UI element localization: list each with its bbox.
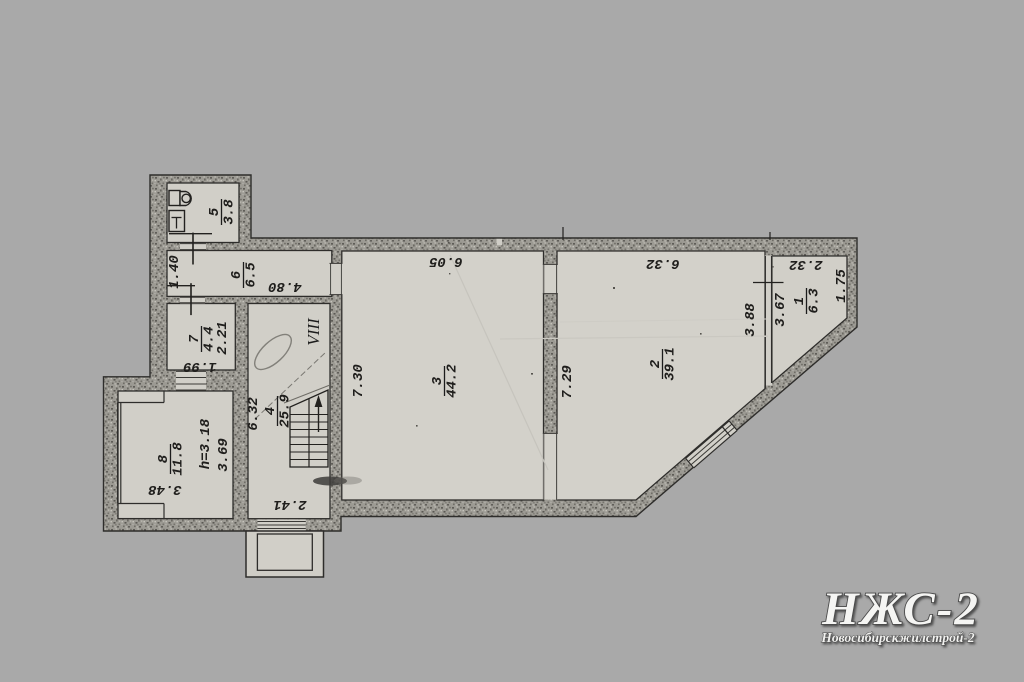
svg-text:3.67: 3.67 bbox=[773, 293, 789, 327]
svg-text:39.1: 39.1 bbox=[663, 347, 679, 381]
svg-text:11.8: 11.8 bbox=[171, 442, 187, 476]
svg-text:3.48: 3.48 bbox=[148, 481, 182, 497]
svg-text:3.88: 3.88 bbox=[743, 303, 759, 337]
svg-text:НЖС-2: НЖС-2 bbox=[821, 583, 980, 635]
svg-text:1.99: 1.99 bbox=[183, 358, 217, 374]
svg-text:4.80: 4.80 bbox=[268, 278, 302, 294]
svg-text:6.32: 6.32 bbox=[246, 397, 262, 431]
svg-text:1.75: 1.75 bbox=[834, 269, 850, 303]
svg-text:6.05: 6.05 bbox=[429, 253, 463, 269]
svg-text:3.69: 3.69 bbox=[216, 438, 232, 472]
svg-text:7.30: 7.30 bbox=[351, 364, 367, 398]
svg-text:h=3.18: h=3.18 bbox=[198, 418, 214, 469]
svg-text:3.8: 3.8 bbox=[222, 199, 238, 225]
svg-text:Новосибирскжилстрой-2: Новосибирскжилстрой-2 bbox=[820, 630, 974, 645]
svg-text:2.21: 2.21 bbox=[215, 321, 231, 355]
svg-text:7.29: 7.29 bbox=[560, 365, 576, 399]
svg-text:1.40: 1.40 bbox=[167, 255, 183, 289]
svg-text:44.2: 44.2 bbox=[445, 364, 461, 398]
svg-text:VIII: VIII bbox=[304, 317, 323, 346]
svg-text:2.41: 2.41 bbox=[273, 496, 307, 512]
svg-text:6.32: 6.32 bbox=[646, 255, 680, 271]
svg-text:2.32: 2.32 bbox=[789, 256, 823, 272]
svg-text:25.9: 25.9 bbox=[278, 394, 294, 428]
svg-text:6.5: 6.5 bbox=[244, 262, 260, 288]
svg-text:6.3: 6.3 bbox=[807, 288, 823, 314]
